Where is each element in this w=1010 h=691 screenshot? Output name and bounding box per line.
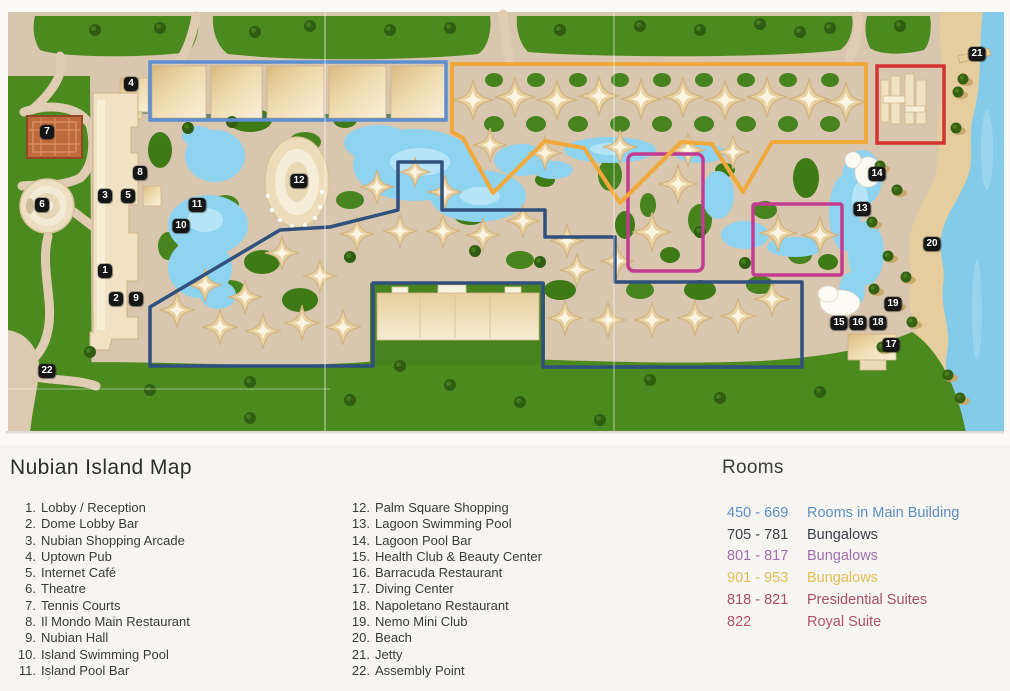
rooms-entry: 901 - 953Bungalows — [727, 568, 959, 590]
map-marker-20: 20 — [923, 237, 940, 251]
map-marker-layer: 12345678910111213141516171819202122 — [0, 0, 1010, 445]
legend-item: 10.Island Swimming Pool — [12, 647, 190, 663]
map-marker-9: 9 — [129, 292, 143, 306]
map-marker-22: 22 — [38, 364, 55, 378]
legend-item: 4.Uptown Pub — [12, 549, 190, 565]
page-title: Nubian Island Map — [10, 456, 192, 480]
legend-item: 20.Beach — [340, 630, 542, 646]
rooms-entry: 801 - 817Bungalows — [727, 546, 959, 568]
map-bottom-edge — [6, 431, 1004, 434]
map-marker-3: 3 — [98, 189, 112, 203]
map-marker-18: 18 — [869, 316, 886, 330]
legend-item: 6.Theatre — [12, 581, 190, 597]
map-marker-21: 21 — [968, 47, 985, 61]
map-marker-5: 5 — [121, 189, 135, 203]
legend-item: 1.Lobby / Reception — [12, 500, 190, 516]
legend-column-2: 12.Palm Square Shopping13.Lagoon Swimmin… — [340, 500, 542, 679]
legend-item: 14.Lagoon Pool Bar — [340, 533, 542, 549]
legend-item: 12.Palm Square Shopping — [340, 500, 542, 516]
rooms-entry: 705 - 781Bungalows — [727, 525, 959, 547]
rooms-list: 450 - 669Rooms in Main Building705 - 781… — [727, 503, 959, 633]
map-marker-13: 13 — [853, 202, 870, 216]
map-marker-1: 1 — [98, 264, 112, 278]
rooms-title: Rooms — [722, 457, 784, 479]
map-marker-7: 7 — [40, 125, 54, 139]
legend-item: 2.Dome Lobby Bar — [12, 516, 190, 532]
legend-item: 5.Internet Café — [12, 565, 190, 581]
legend-item: 18.Napoletano Restaurant — [340, 598, 542, 614]
map-marker-2: 2 — [109, 292, 123, 306]
map-marker-15: 15 — [830, 316, 847, 330]
map-marker-8: 8 — [133, 166, 147, 180]
legend-item: 9.Nubian Hall — [12, 630, 190, 646]
map-marker-19: 19 — [884, 297, 901, 311]
resort-map-page: 12345678910111213141516171819202122 Nubi… — [0, 0, 1010, 691]
legend-item: 15.Health Club & Beauty Center — [340, 549, 542, 565]
legend-item: 19.Nemo Mini Club — [340, 614, 542, 630]
legend-item: 3.Nubian Shopping Arcade — [12, 533, 190, 549]
legend-item: 11.Island Pool Bar — [12, 663, 190, 679]
legend-item: 21.Jetty — [340, 647, 542, 663]
map-marker-10: 10 — [172, 219, 189, 233]
map-marker-6: 6 — [35, 198, 49, 212]
map-marker-11: 11 — [189, 198, 206, 212]
rooms-entry: 818 - 821Presidential Suites — [727, 590, 959, 612]
legend-item: 8.Il Mondo Main Restaurant — [12, 614, 190, 630]
legend-item: 22.Assembly Point — [340, 663, 542, 679]
rooms-entry: 450 - 669Rooms in Main Building — [727, 503, 959, 525]
legend-item: 16.Barracuda Restaurant — [340, 565, 542, 581]
map-illustration: 12345678910111213141516171819202122 — [0, 0, 1010, 445]
legend-item: 7.Tennis Courts — [12, 598, 190, 614]
rooms-entry: 822Royal Suite — [727, 612, 959, 634]
legend-item: 13.Lagoon Swimming Pool — [340, 516, 542, 532]
map-marker-14: 14 — [868, 167, 885, 181]
map-marker-12: 12 — [290, 174, 307, 188]
map-marker-16: 16 — [849, 316, 866, 330]
map-marker-4: 4 — [124, 77, 138, 91]
map-marker-17: 17 — [882, 338, 899, 352]
legend-item: 17.Diving Center — [340, 581, 542, 597]
legend-column-1: 1.Lobby / Reception2.Dome Lobby Bar3.Nub… — [12, 500, 190, 679]
